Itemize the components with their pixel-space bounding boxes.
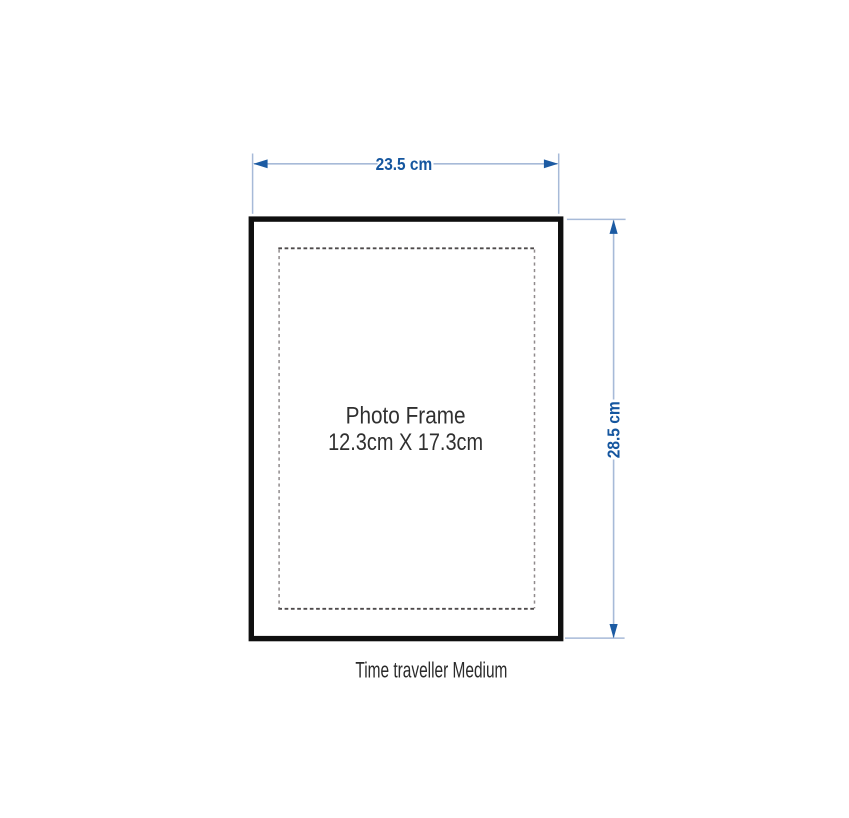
svg-text:Time traveller Medium: Time traveller Medium xyxy=(355,657,507,682)
svg-text:28.5 cm: 28.5 cm xyxy=(603,401,623,458)
svg-text:Photo Frame: Photo Frame xyxy=(346,402,466,429)
svg-text:23.5 cm: 23.5 cm xyxy=(376,154,433,174)
svg-text:12.3cm X 17.3cm: 12.3cm X 17.3cm xyxy=(328,429,483,456)
